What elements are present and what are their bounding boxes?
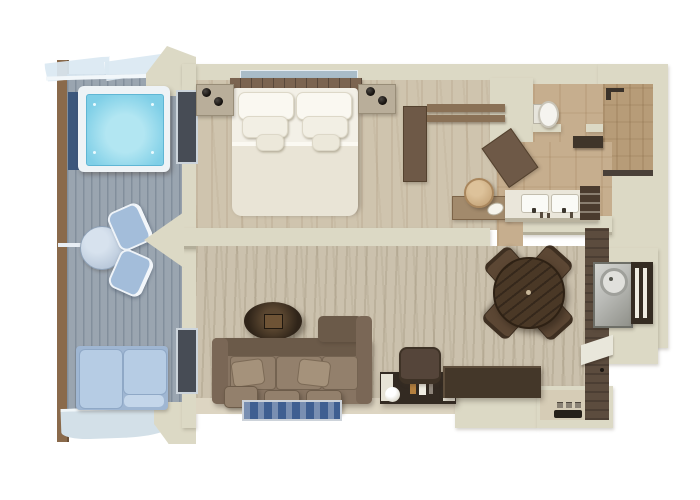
desk-chair	[399, 347, 441, 384]
sofa-armrest	[356, 316, 372, 404]
sphere-lamp	[378, 96, 387, 105]
slat	[635, 268, 639, 318]
table-tray	[264, 314, 283, 329]
book	[429, 384, 433, 394]
slat-panel	[631, 262, 653, 324]
dining-table	[493, 257, 565, 329]
floor-tile	[575, 402, 581, 408]
door-threshold	[554, 410, 582, 418]
blue-rug	[242, 400, 342, 421]
amenity-shelf	[580, 186, 600, 220]
floor-tile	[566, 402, 572, 408]
slat	[643, 268, 647, 318]
daybed-cushion	[79, 349, 123, 409]
hot-tub-water	[86, 94, 164, 166]
sphere-lamp	[202, 88, 211, 97]
table-hub	[526, 290, 531, 295]
floor-tile	[557, 402, 563, 408]
daybed-cushion	[123, 349, 167, 395]
jet-dot	[151, 151, 154, 154]
faucet	[532, 208, 536, 213]
clothes-rail	[427, 115, 505, 122]
hot-tub	[78, 86, 170, 172]
amenity-bottle	[570, 212, 573, 218]
bed-cushion	[256, 134, 284, 151]
oval-coffee-table	[244, 302, 302, 340]
bar-sink-unit	[593, 262, 633, 328]
credenza	[443, 366, 541, 398]
suite-floorplan	[0, 0, 700, 500]
bed-cushion	[312, 134, 340, 151]
amenity-bottle	[547, 213, 550, 218]
jet-dot	[93, 103, 96, 106]
shower-glass	[603, 170, 653, 176]
desk-lamp	[385, 387, 400, 402]
living-room-window	[176, 328, 198, 394]
sphere-lamp	[366, 87, 375, 96]
bath-bench	[573, 136, 603, 148]
faucet	[562, 208, 566, 213]
throw-pillow	[297, 358, 332, 388]
round-stool	[464, 178, 494, 208]
duvet	[232, 142, 358, 216]
throw-pillow	[230, 358, 265, 388]
sphere-lamp	[214, 97, 223, 106]
toilet-room-wall	[586, 124, 603, 132]
bar-basin	[600, 268, 628, 296]
jet-dot	[151, 103, 154, 106]
daybed	[76, 346, 168, 410]
amenity-bottle	[540, 212, 543, 218]
door-handle-dot	[600, 368, 604, 372]
jet-dot	[93, 151, 96, 154]
basin-drain	[609, 277, 613, 281]
double-bed	[232, 88, 358, 212]
toilet	[538, 101, 559, 128]
daybed-pillow	[124, 395, 164, 407]
wardrobe	[403, 106, 427, 182]
clothes-rail	[427, 104, 505, 112]
shower-head	[606, 88, 611, 100]
bedroom-window	[176, 90, 198, 164]
nightstand-right	[358, 84, 396, 114]
